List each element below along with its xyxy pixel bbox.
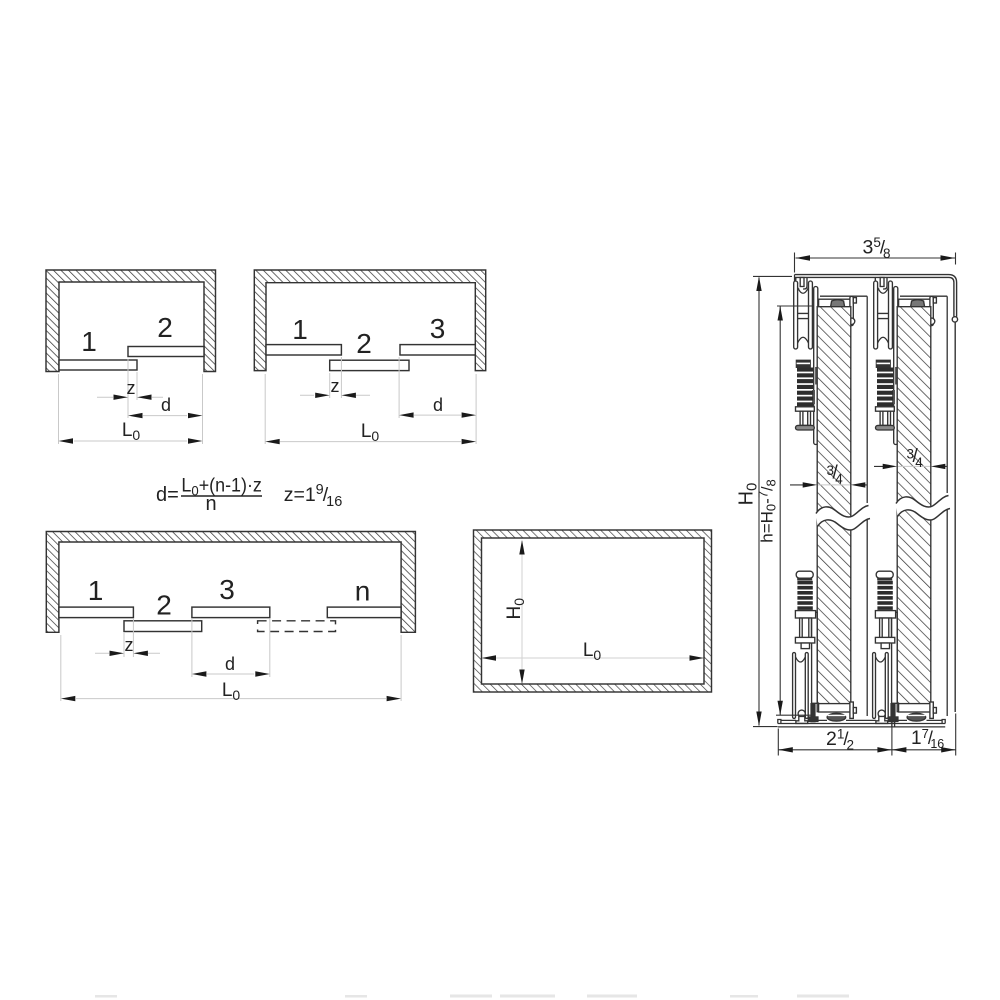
svg-text:L0+(n-1)·z: L0+(n-1)·z [181, 476, 262, 499]
svg-text:1: 1 [81, 326, 97, 357]
svg-text:n: n [355, 576, 371, 607]
svg-text:L0: L0 [122, 420, 141, 443]
svg-text:2: 2 [356, 328, 372, 359]
svg-text:z=19/16: z=19/16 [284, 482, 343, 510]
svg-text:3: 3 [430, 313, 446, 344]
svg-text:d: d [433, 395, 443, 415]
svg-text:d: d [161, 395, 171, 415]
svg-text:d: d [225, 654, 235, 674]
svg-text:n: n [205, 493, 216, 515]
svg-text:17/16: 17/16 [911, 726, 944, 751]
svg-text:21/2: 21/2 [826, 727, 854, 753]
svg-text:1: 1 [88, 575, 104, 606]
svg-text:L0: L0 [222, 680, 241, 703]
svg-text:L0: L0 [361, 421, 380, 444]
svg-text:d=: d= [156, 484, 179, 506]
svg-text:z: z [127, 378, 136, 398]
svg-text:z: z [125, 635, 134, 655]
svg-text:z: z [331, 376, 340, 396]
svg-text:3: 3 [219, 574, 235, 605]
svg-text:2: 2 [157, 312, 173, 343]
svg-text:1: 1 [292, 314, 308, 345]
svg-text:2: 2 [156, 590, 172, 621]
svg-text:35/8: 35/8 [863, 235, 891, 261]
